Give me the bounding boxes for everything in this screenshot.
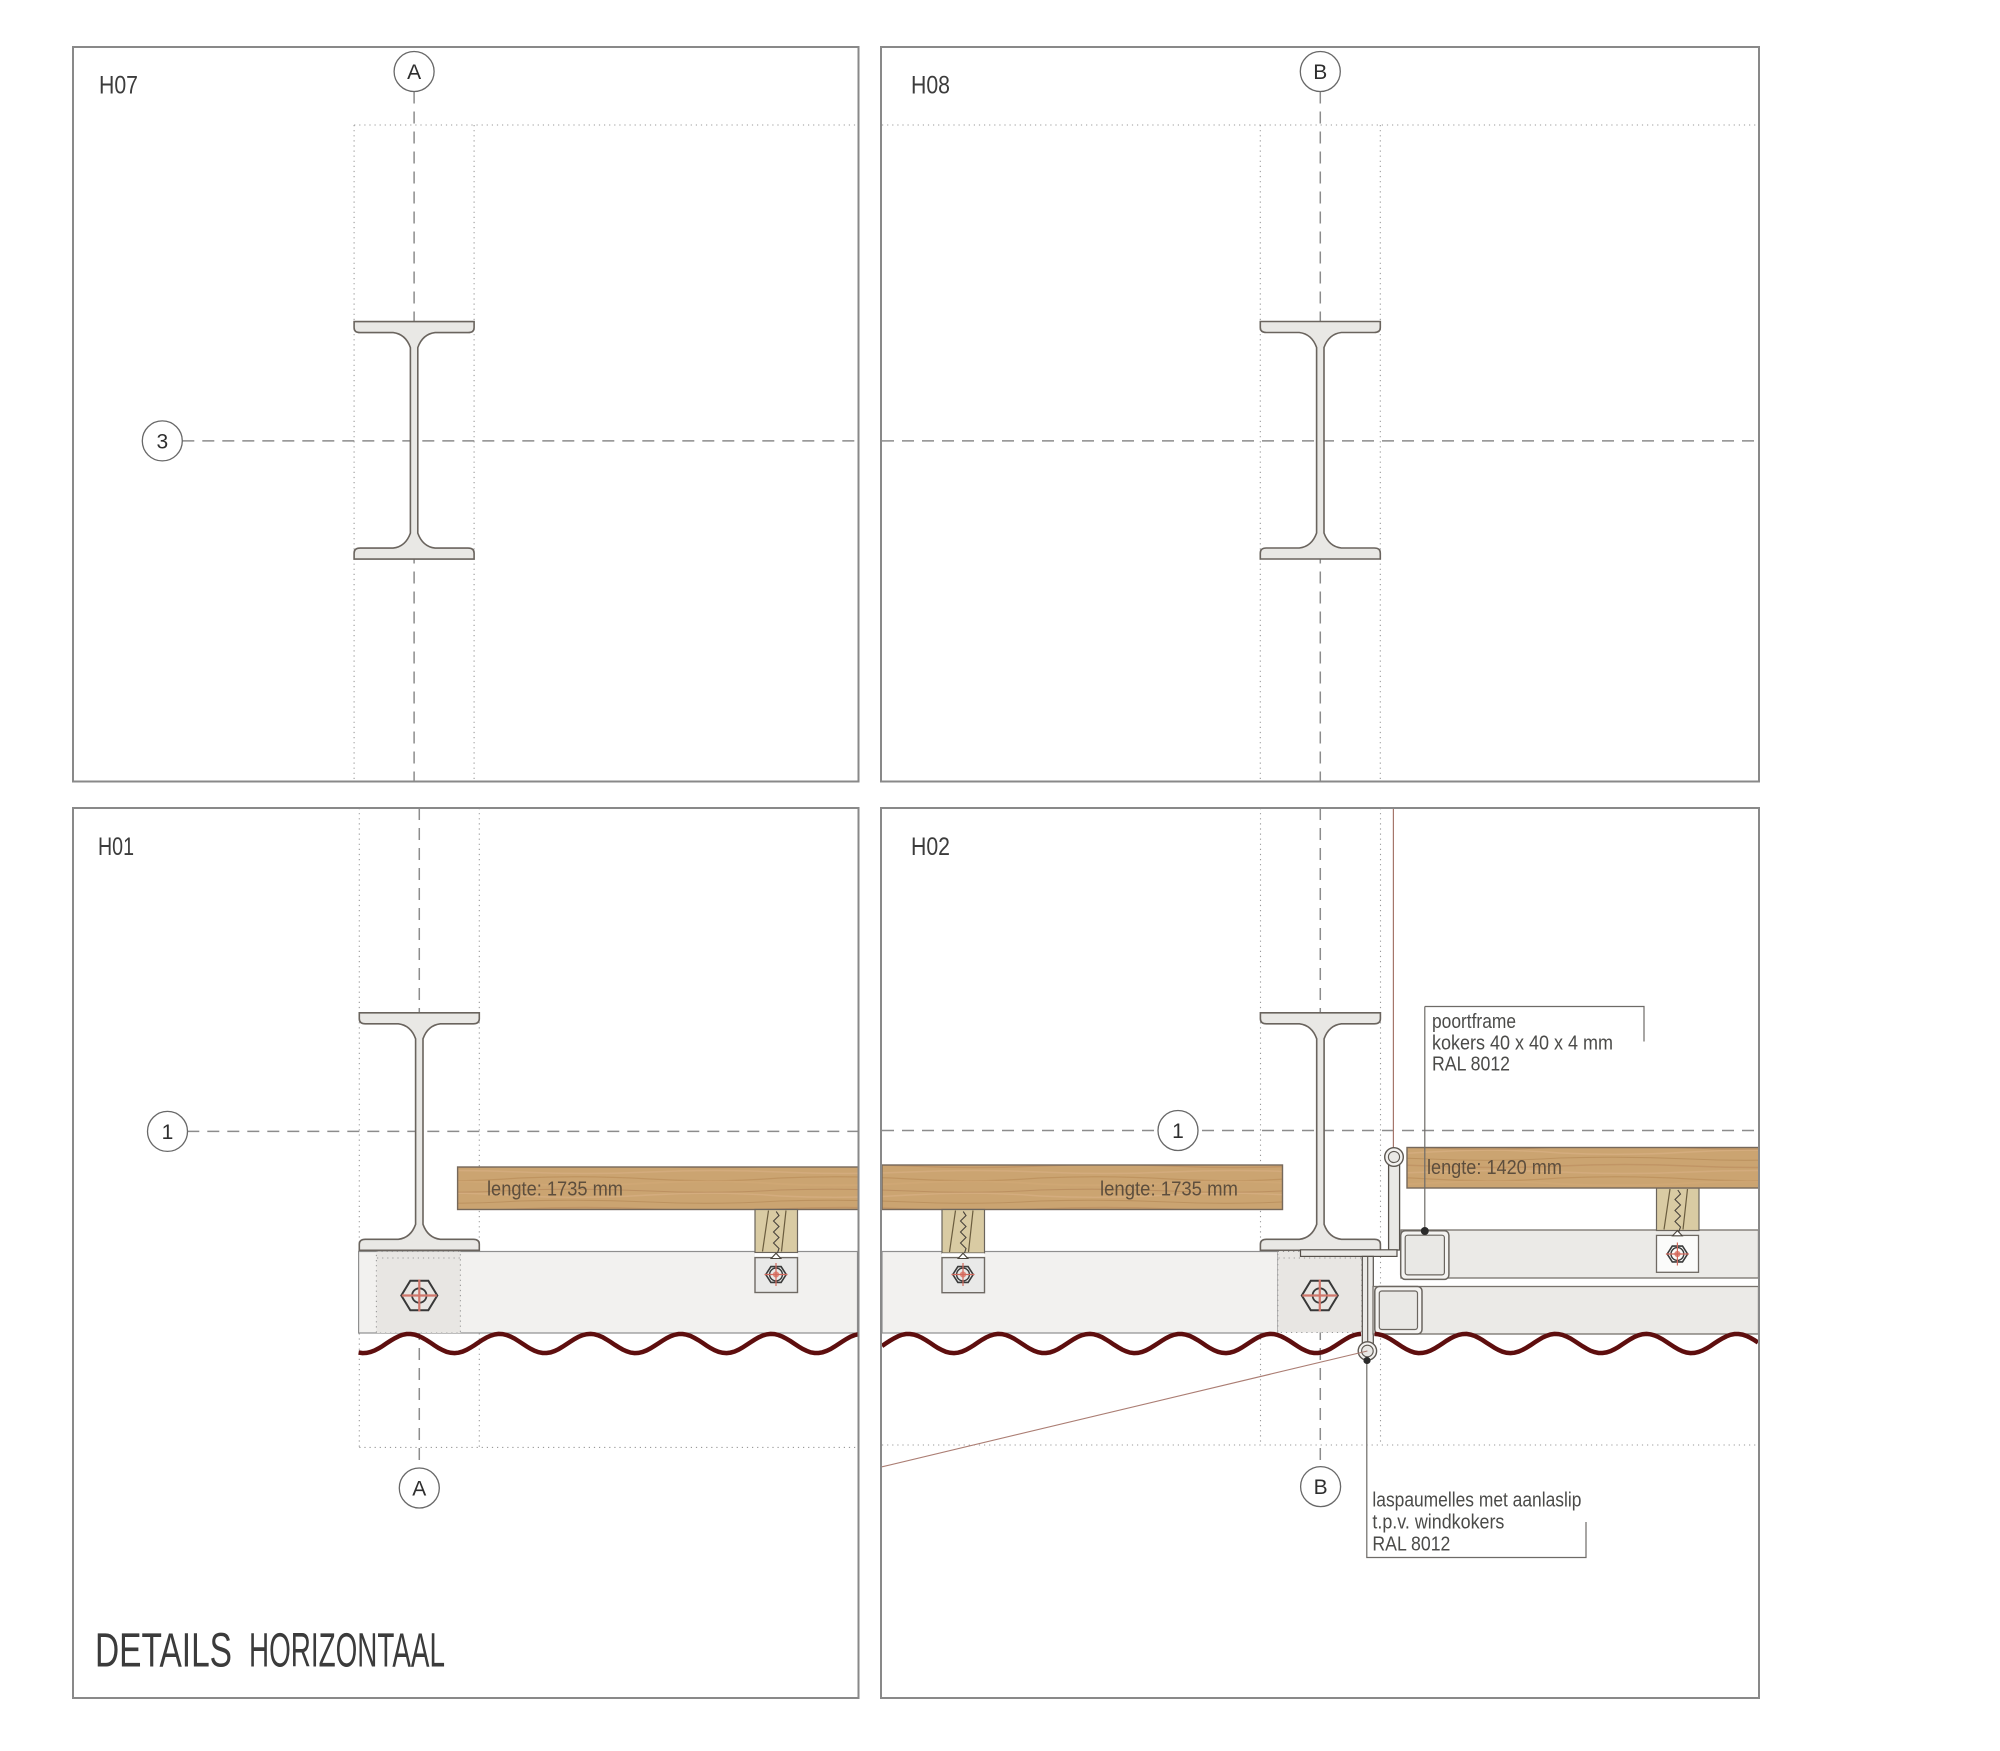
svg-text:3: 3 [156,430,168,453]
svg-text:lengte: 1735 mm: lengte: 1735 mm [1100,1179,1238,1201]
svg-text:lengte: 1735 mm: lengte: 1735 mm [487,1179,623,1201]
svg-text:H02: H02 [911,833,950,861]
svg-text:RAL 8012: RAL 8012 [1432,1054,1510,1076]
svg-text:A: A [412,1478,426,1501]
svg-text:HORIZONTAAL: HORIZONTAAL [249,1625,445,1678]
svg-text:laspaumelles met aanlaslip: laspaumelles met aanlaslip [1372,1490,1581,1512]
svg-text:A: A [407,61,421,84]
svg-text:B: B [1314,1476,1328,1499]
svg-text:kokers 40 x 40 x 4 mm: kokers 40 x 40 x 4 mm [1432,1033,1613,1055]
svg-text:H07: H07 [99,72,138,100]
svg-text:H01: H01 [98,833,134,861]
svg-text:1: 1 [162,1121,174,1144]
svg-text:RAL 8012: RAL 8012 [1372,1534,1450,1556]
svg-text:poortframe: poortframe [1432,1011,1516,1033]
svg-text:t.p.v. windkokers: t.p.v. windkokers [1372,1512,1504,1534]
svg-text:DETAILS: DETAILS [95,1625,232,1678]
svg-text:1: 1 [1172,1120,1184,1143]
svg-text:H08: H08 [911,72,950,100]
svg-text:lengte: 1420 mm: lengte: 1420 mm [1427,1157,1562,1179]
svg-text:B: B [1313,61,1327,84]
